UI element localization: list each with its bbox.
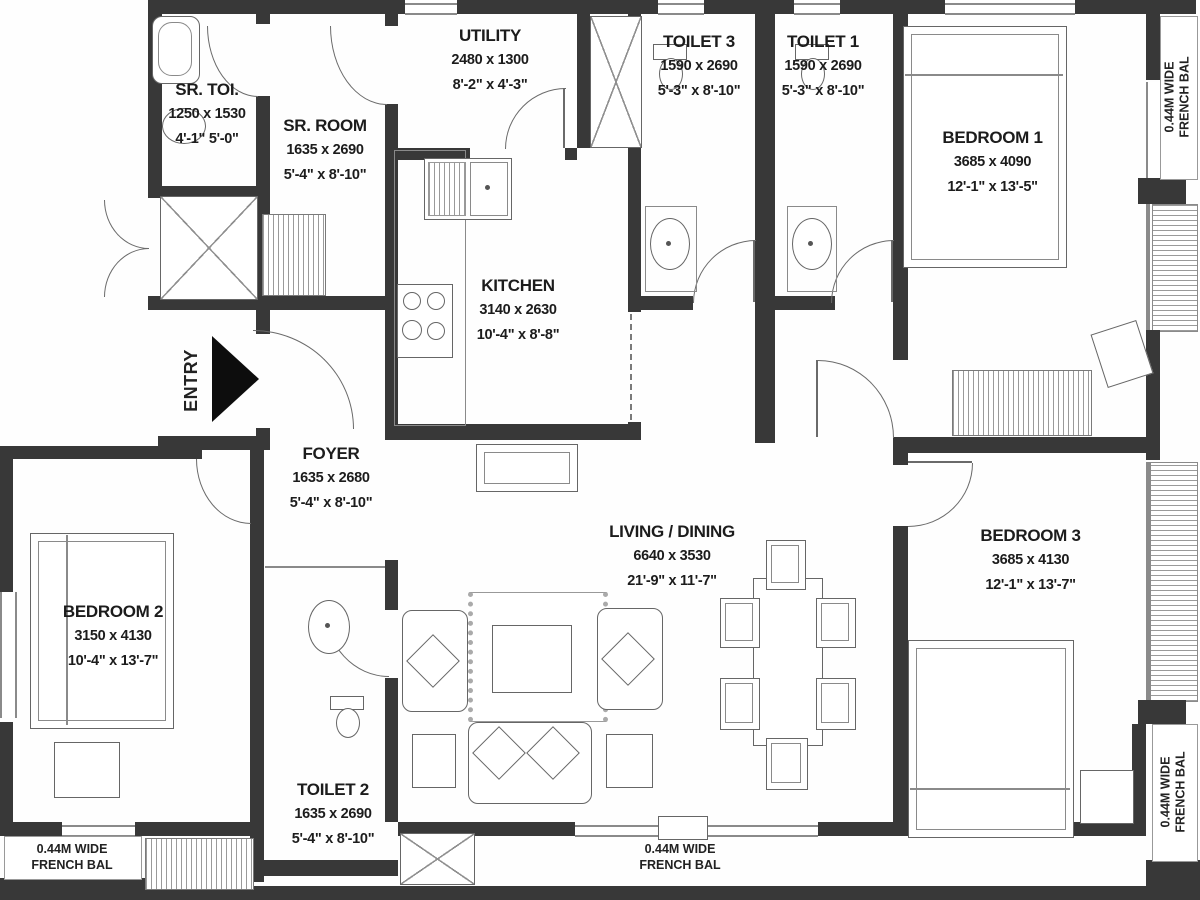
entry-label-wrap: ENTRY	[176, 330, 206, 430]
wall-segment	[893, 437, 1160, 453]
wall-segment	[0, 822, 62, 836]
wall-segment	[1132, 724, 1146, 836]
room-dim-ft: 5'-4" x 8'-10"	[262, 831, 404, 847]
wall-segment	[256, 14, 270, 24]
window	[0, 592, 17, 718]
room-dim-mm: 1635 x 2690	[262, 806, 404, 822]
room-name: SR. TOI.	[152, 80, 262, 100]
door-arc	[505, 88, 566, 149]
french-window-hatch	[1152, 204, 1198, 332]
room-dim-mm: 3685 x 4130	[938, 552, 1123, 568]
sink-drainboard	[428, 162, 466, 216]
room-dim-mm: 1635 x 2690	[268, 142, 382, 158]
floor-plan: 0.44M WIDEFRENCH BAL 0.44M WIDEFRENCH BA…	[0, 0, 1200, 900]
balcony-text: FRENCH BAL	[1178, 56, 1193, 137]
room-dim-mm: 1590 x 2690	[640, 58, 758, 74]
room-name: BEDROOM 2	[28, 602, 198, 622]
wall-segment	[893, 526, 908, 836]
wall-segment	[577, 14, 590, 148]
window	[405, 3, 457, 15]
burner	[403, 292, 421, 310]
dining-chair-inner	[771, 743, 801, 783]
room-name: KITCHEN	[438, 276, 598, 296]
room-name: BEDROOM 3	[938, 526, 1123, 546]
entry-door-arc	[253, 330, 354, 429]
door-leaf	[563, 88, 565, 148]
room-dim-ft: 8'-2" x 4'-3"	[428, 77, 552, 93]
wall-segment	[840, 0, 945, 14]
balcony-text: 0.44M WIDE	[1159, 751, 1174, 832]
room-dim-ft: 12'-1" x 13'-7"	[938, 577, 1123, 593]
door-arc	[908, 463, 973, 527]
center-table	[492, 625, 572, 693]
side-table	[412, 734, 456, 788]
bench	[54, 742, 120, 798]
room-dim-mm: 3140 x 2630	[438, 302, 598, 318]
door-arc	[104, 248, 149, 297]
room-dim-ft: 21'-9" x 11'-7"	[592, 573, 752, 589]
side-table	[606, 734, 653, 788]
room-label-toilet-1: TOILET 1 1590 x 2690 5'-3" x 8'-10"	[762, 32, 884, 99]
room-dim-mm: 1635 x 2680	[272, 470, 390, 486]
sink-drain	[485, 185, 490, 190]
room-dim-mm: 6640 x 3530	[592, 548, 752, 564]
balcony-text: FRENCH BAL	[8, 857, 136, 873]
room-label-toilet-2: TOILET 2 1635 x 2690 5'-4" x 8'-10"	[262, 780, 404, 847]
bed-line	[910, 788, 1070, 790]
dining-chair-inner	[821, 683, 849, 723]
room-label-utility: UTILITY 2480 x 1300 8'-2" x 4'-3"	[428, 26, 552, 93]
room-label-sr-room: SR. ROOM 1635 x 2690 5'-4" x 8'-10"	[268, 116, 382, 183]
balcony-text: 0.44M WIDE	[1163, 56, 1178, 137]
balcony-label-bottom-middle: 0.44M WIDE FRENCH BAL	[590, 841, 770, 873]
wall-segment	[1138, 700, 1186, 724]
nightstand	[1080, 770, 1134, 824]
balcony-label-bottom-left: 0.44M WIDE FRENCH BAL	[8, 841, 136, 873]
bathtub-inner	[158, 22, 192, 76]
door-leaf	[908, 461, 972, 463]
room-label-bedroom-1: BEDROOM 1 3685 x 4090 12'-1" x 13'-5"	[900, 128, 1085, 195]
window	[794, 3, 840, 15]
french-window-hatch	[1150, 462, 1198, 702]
dining-chair-inner	[771, 545, 799, 583]
wall-segment	[385, 14, 398, 26]
room-dim-mm: 1250 x 1530	[152, 106, 262, 122]
wall-segment	[565, 148, 577, 160]
balcony-text: 0.44M WIDE	[590, 841, 770, 857]
room-label-bedroom-2: BEDROOM 2 3150 x 4130 10'-4" x 13'-7"	[28, 602, 198, 669]
wall-segment	[150, 886, 1200, 900]
door-arc	[818, 360, 894, 438]
wall-segment	[148, 0, 405, 14]
balcony-label-bottom-right: 0.44M WIDEFRENCH BAL	[1152, 724, 1196, 860]
dresser	[952, 370, 1092, 436]
door-arc	[693, 240, 756, 303]
kitchen-opening-dashed	[630, 314, 632, 420]
room-dim-ft: 5'-4" x 8'-10"	[272, 495, 390, 511]
duct-shaft	[400, 833, 475, 885]
wall-segment	[1146, 14, 1160, 80]
door-arc	[104, 200, 149, 249]
wall-segment	[398, 424, 631, 440]
room-name: TOILET 2	[262, 780, 404, 800]
lift-shaft	[160, 196, 258, 300]
dining-table	[753, 578, 823, 746]
room-dim-mm: 3150 x 4130	[28, 628, 198, 644]
room-dim-mm: 2480 x 1300	[428, 52, 552, 68]
dining-chair-inner	[821, 603, 849, 641]
wall-segment	[0, 722, 13, 834]
room-name: UTILITY	[428, 26, 552, 46]
entry-arrow-icon	[212, 336, 259, 422]
door-arc	[196, 459, 251, 524]
basin-drain	[666, 241, 671, 246]
wall-segment	[641, 296, 693, 310]
room-name: TOILET 3	[640, 32, 758, 52]
ac-ledge-hatch	[145, 838, 254, 890]
room-label-living-dining: LIVING / DINING 6640 x 3530 21'-9" x 11'…	[592, 522, 752, 589]
room-label-sr-toi: SR. TOI. 1250 x 1530 4'-1" 5'-0"	[152, 80, 262, 147]
entry-label: ENTRY	[184, 349, 199, 412]
room-dim-ft: 10'-4" x 8'-8"	[438, 327, 598, 343]
wall-segment	[1138, 178, 1186, 204]
console-table-inner	[484, 452, 570, 484]
wall-segment	[0, 446, 13, 592]
room-dim-mm: 1590 x 2690	[762, 58, 884, 74]
dining-chair-inner	[725, 683, 753, 723]
room-dim-mm: 3685 x 4090	[900, 154, 1085, 170]
toilet2-counter-line	[265, 566, 385, 568]
burner	[402, 320, 422, 340]
wall-segment	[385, 560, 398, 610]
basin-drain	[808, 241, 813, 246]
room-dim-ft: 5'-3" x 8'-10"	[762, 83, 884, 99]
balcony-text: FRENCH BAL	[1174, 751, 1189, 832]
balcony-label-top-right: 0.44M WIDEFRENCH BAL	[1160, 16, 1196, 178]
basin-drain	[325, 623, 330, 628]
wall-segment	[893, 453, 908, 465]
door-arc	[330, 26, 387, 105]
wall-segment	[252, 860, 398, 876]
balcony-rail	[1146, 204, 1150, 330]
room-name: BEDROOM 1	[900, 128, 1085, 148]
room-dim-ft: 5'-3" x 8'-10"	[640, 83, 758, 99]
bed-inner	[916, 648, 1066, 830]
wall-segment	[628, 422, 641, 440]
wall-segment	[135, 822, 252, 836]
wc-bowl	[336, 708, 360, 738]
room-label-toilet-3: TOILET 3 1590 x 2690 5'-3" x 8'-10"	[640, 32, 758, 99]
wall-segment	[256, 296, 398, 310]
wardrobe	[262, 214, 326, 296]
room-dim-ft: 4'-1" 5'-0"	[152, 131, 262, 147]
wall-segment	[0, 446, 202, 459]
wall-segment	[1146, 330, 1160, 460]
balcony-text: 0.44M WIDE	[8, 841, 136, 857]
door-leaf	[891, 240, 893, 302]
sliding-door-marker	[658, 816, 708, 840]
door-arc	[831, 240, 894, 303]
window	[945, 3, 1075, 15]
wall-segment	[457, 0, 640, 14]
balcony-rail	[1146, 462, 1150, 700]
window	[658, 3, 704, 15]
room-dim-ft: 5'-4" x 8'-10"	[268, 167, 382, 183]
room-dim-ft: 12'-1" x 13'-5"	[900, 179, 1085, 195]
room-name: FOYER	[272, 444, 390, 464]
door-leaf	[816, 360, 818, 437]
wall-segment	[775, 296, 835, 310]
wall-segment	[704, 0, 794, 14]
wall-segment	[1146, 860, 1200, 900]
wall-segment	[1075, 0, 1196, 14]
chair	[1091, 320, 1154, 388]
room-name: SR. ROOM	[268, 116, 382, 136]
wall-segment	[640, 0, 658, 14]
room-label-bedroom-3: BEDROOM 3 3685 x 4130 12'-1" x 13'-7"	[938, 526, 1123, 593]
room-label-kitchen: KITCHEN 3140 x 2630 10'-4" x 8'-8"	[438, 276, 598, 343]
dining-chair-inner	[725, 603, 753, 641]
door-leaf	[753, 240, 755, 302]
wall-segment	[0, 878, 150, 900]
room-name: LIVING / DINING	[592, 522, 752, 542]
duct-shaft	[590, 16, 642, 148]
room-label-foyer: FOYER 1635 x 2680 5'-4" x 8'-10"	[272, 444, 390, 511]
balcony-text: FRENCH BAL	[590, 857, 770, 873]
room-name: TOILET 1	[762, 32, 884, 52]
room-dim-ft: 10'-4" x 13'-7"	[28, 653, 198, 669]
bed-line	[905, 74, 1063, 76]
